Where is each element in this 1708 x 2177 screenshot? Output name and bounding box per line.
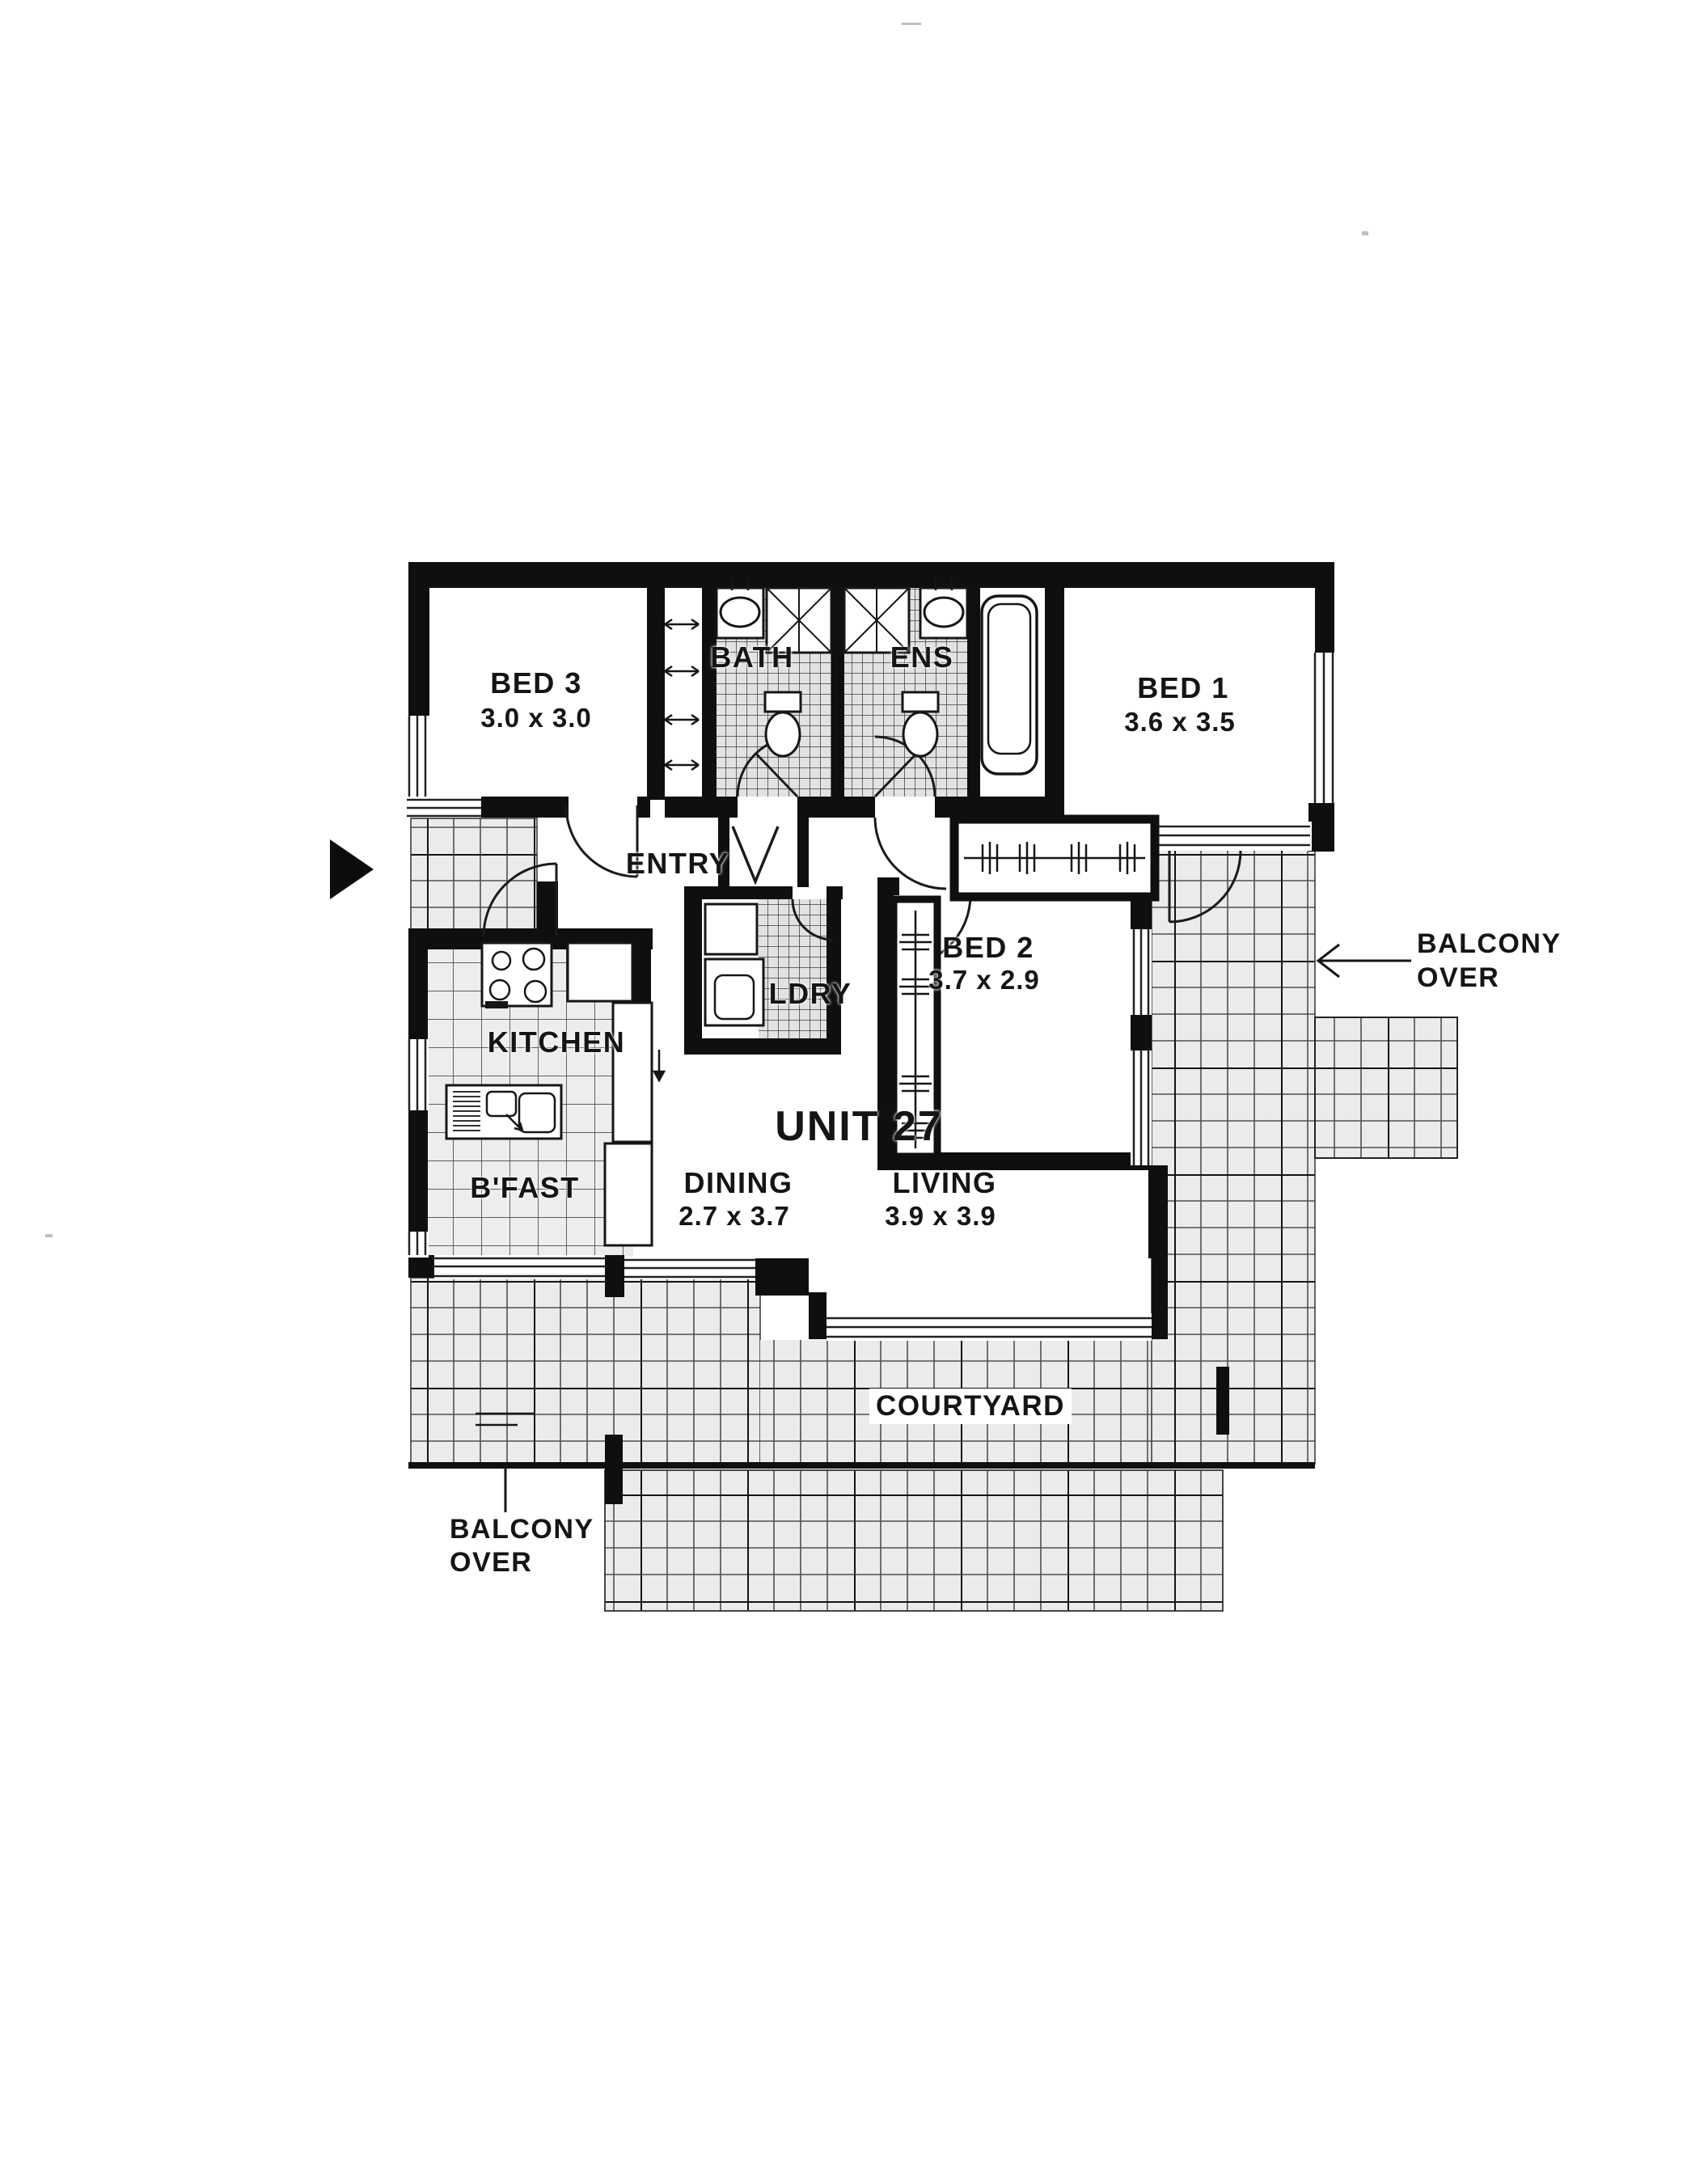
room-label-ens: ENS (890, 640, 954, 674)
window-bed1-right (1312, 653, 1336, 803)
balcony-bumpout-tiles (1315, 1017, 1457, 1158)
linen-shelf-arrows (665, 619, 699, 770)
window-living-bay (827, 1313, 1152, 1341)
balcony-over-bottom-label-line1: BALCONY (450, 1514, 594, 1545)
room-label-bath: BATH (710, 640, 793, 674)
room-dims-bed3: 3.0 x 3.0 (480, 703, 591, 733)
balcony-right-arrow-icon (1318, 945, 1411, 977)
window-dining-bottom (624, 1257, 755, 1279)
closet-bifold-door (733, 826, 778, 881)
room-dims-dining: 2.7 x 3.7 (679, 1201, 789, 1232)
room-dims-bed1: 3.6 x 3.5 (1124, 707, 1235, 738)
scan-artifact (45, 1234, 53, 1237)
courtyard-label: COURTYARD (869, 1389, 1072, 1424)
room-label-bfast: B'FAST (470, 1171, 580, 1205)
bed1-wardrobe (954, 819, 1155, 897)
room-label-kitchen: KITCHEN (488, 1025, 626, 1059)
room-dims-living: 3.9 x 3.9 (885, 1201, 996, 1232)
balcony-over-right-label-line1: BALCONY (1417, 928, 1562, 960)
ens-toilet-icon (903, 692, 938, 756)
unit-title: UNIT 27 (775, 1102, 943, 1151)
room-label-living: LIVING (892, 1166, 996, 1200)
ens-basin-icon (920, 578, 967, 638)
courtyard-left-tiles (411, 1278, 760, 1464)
bath-basin-icon (717, 578, 763, 638)
room-label-dining: DINING (684, 1166, 793, 1200)
window-living-right (1131, 1050, 1152, 1165)
balcony-over-bottom-label-line2: OVER (450, 1547, 532, 1579)
room-label-entry: ENTRY (626, 847, 729, 881)
room-dims-bed2: 3.7 x 2.9 (928, 965, 1039, 996)
laundry-appliance (705, 904, 757, 954)
window-bed1-slider (1153, 822, 1312, 851)
fridge-space (568, 943, 632, 1001)
window-bed2-right (1131, 929, 1152, 1015)
entry-marker-icon (330, 839, 374, 899)
balcony-over-right-label-line2: OVER (1417, 962, 1499, 994)
bathtub-icon (982, 596, 1037, 774)
floorplan-page: BED 3 3.0 x 3.0 BATH ENS BED 1 3.6 x 3.5… (0, 0, 1708, 2177)
room-label-bed3: BED 3 (490, 666, 582, 700)
window-bfast-bottom (434, 1255, 605, 1279)
scan-artifact (902, 23, 921, 25)
stove-icon (482, 943, 552, 1008)
bath-toilet-icon (765, 692, 801, 756)
window-bed3-left (404, 716, 481, 818)
laundry-trough-icon (705, 959, 763, 1025)
room-label-bed2: BED 2 (942, 931, 1034, 965)
room-label-bed1: BED 1 (1137, 671, 1229, 705)
scan-artifact (1362, 231, 1368, 235)
courtyard-lower-tiles (605, 1470, 1223, 1611)
floorplan-drawing (0, 0, 1708, 2177)
room-label-ldry: LDRY (769, 977, 852, 1011)
courtyard-right-strip-tiles (1152, 849, 1315, 1464)
threshold-arrow-mark (654, 1050, 664, 1080)
kitchen-sink-icon (446, 1085, 561, 1139)
